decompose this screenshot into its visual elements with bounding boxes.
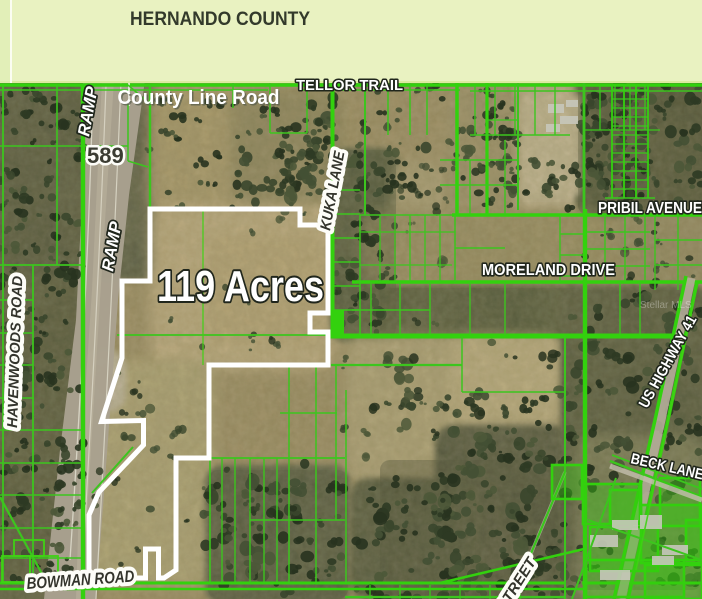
svg-text:Stellar MLS: Stellar MLS: [640, 300, 692, 311]
svg-text:589: 589: [87, 143, 124, 168]
svg-text:119 Acres: 119 Acres: [157, 262, 324, 311]
svg-text:HERNANDO COUNTY: HERNANDO COUNTY: [130, 8, 310, 30]
svg-text:TELLOR TRAIL: TELLOR TRAIL: [296, 78, 403, 94]
svg-text:County Line Road: County Line Road: [118, 86, 280, 109]
svg-text:PRIBIL AVENUE: PRIBIL AVENUE: [598, 200, 702, 217]
svg-text:MORELAND DRIVE: MORELAND DRIVE: [482, 262, 615, 279]
